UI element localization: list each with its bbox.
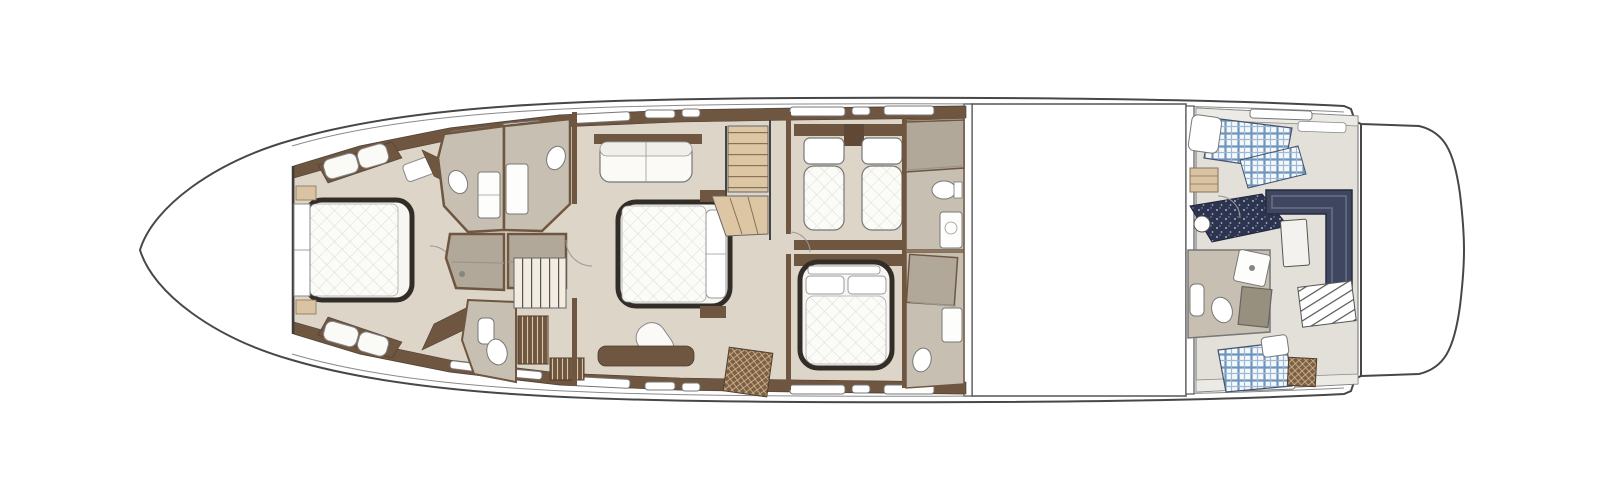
- vip-bed-mattress: [310, 204, 398, 296]
- hanging-wardrobe: [518, 316, 548, 364]
- double-cabin-wall: [786, 254, 791, 390]
- shower-head: [459, 271, 465, 277]
- master-bench: [598, 346, 694, 366]
- twin-nightstand: [844, 124, 864, 146]
- hull-window: [682, 383, 700, 391]
- crew-shower: [1238, 287, 1272, 328]
- vanity-sink: [940, 212, 962, 248]
- twin-cabin-wall: [786, 112, 791, 234]
- rattan-stool: [1287, 357, 1316, 386]
- double-bath-shower: [906, 254, 957, 305]
- twin-bed-mattress: [804, 166, 844, 230]
- crew-drawers: [1190, 168, 1218, 192]
- hull-window: [645, 382, 675, 390]
- deck-plan-svg: [0, 0, 1600, 500]
- twin-double-divider: [794, 240, 906, 250]
- double-bed-pillow: [806, 276, 844, 294]
- engine-room: [972, 104, 1186, 396]
- vip-nightstand: [296, 186, 316, 200]
- hull-window: [852, 385, 870, 393]
- toilet: [932, 181, 956, 199]
- vanity-sink: [942, 308, 962, 342]
- vanity-sink: [506, 164, 528, 214]
- master-nightstand: [700, 306, 726, 318]
- hull-window: [1250, 109, 1312, 120]
- foyer-staircase: [514, 258, 566, 308]
- crew-aft-bed-pillow: [1261, 334, 1290, 357]
- toilet-tank: [954, 182, 962, 198]
- stern-staircase: [1298, 281, 1356, 327]
- double-bed-mattress: [806, 296, 886, 364]
- vip-nightstand: [296, 300, 316, 314]
- hull-window: [884, 106, 934, 115]
- crew-shelf: [1298, 121, 1346, 133]
- engine-room-wall-fwd: [964, 104, 972, 396]
- master-bed-mattress: [622, 206, 706, 302]
- crew-bunk-pillow: [1188, 114, 1223, 154]
- twin-bed-pillow: [804, 138, 844, 164]
- yacht-lower-deck-floor-plan: [0, 0, 1600, 500]
- hull-window: [645, 110, 675, 118]
- twin-bed-mattress: [862, 166, 902, 230]
- hull-window: [682, 109, 700, 117]
- double-bed-pillow: [848, 276, 886, 294]
- master-forward-wall: [572, 298, 577, 386]
- twin-bath-shower: [906, 120, 964, 172]
- hull-window: [790, 385, 845, 394]
- wardrobe-crosshatch: [723, 347, 773, 397]
- mid-staircase: [728, 126, 768, 192]
- crew-bath-sink: [1190, 284, 1204, 316]
- galley-sink: [1194, 216, 1210, 232]
- hull-window: [852, 107, 870, 115]
- double-headboard-shelf: [808, 266, 880, 274]
- hanging-wardrobe: [550, 358, 584, 380]
- hull-window: [790, 107, 845, 116]
- crew-mess-table: [1280, 219, 1309, 267]
- twin-bed-pillow: [862, 138, 902, 164]
- master-forward-wall: [572, 112, 577, 204]
- shower-head: [1249, 265, 1255, 271]
